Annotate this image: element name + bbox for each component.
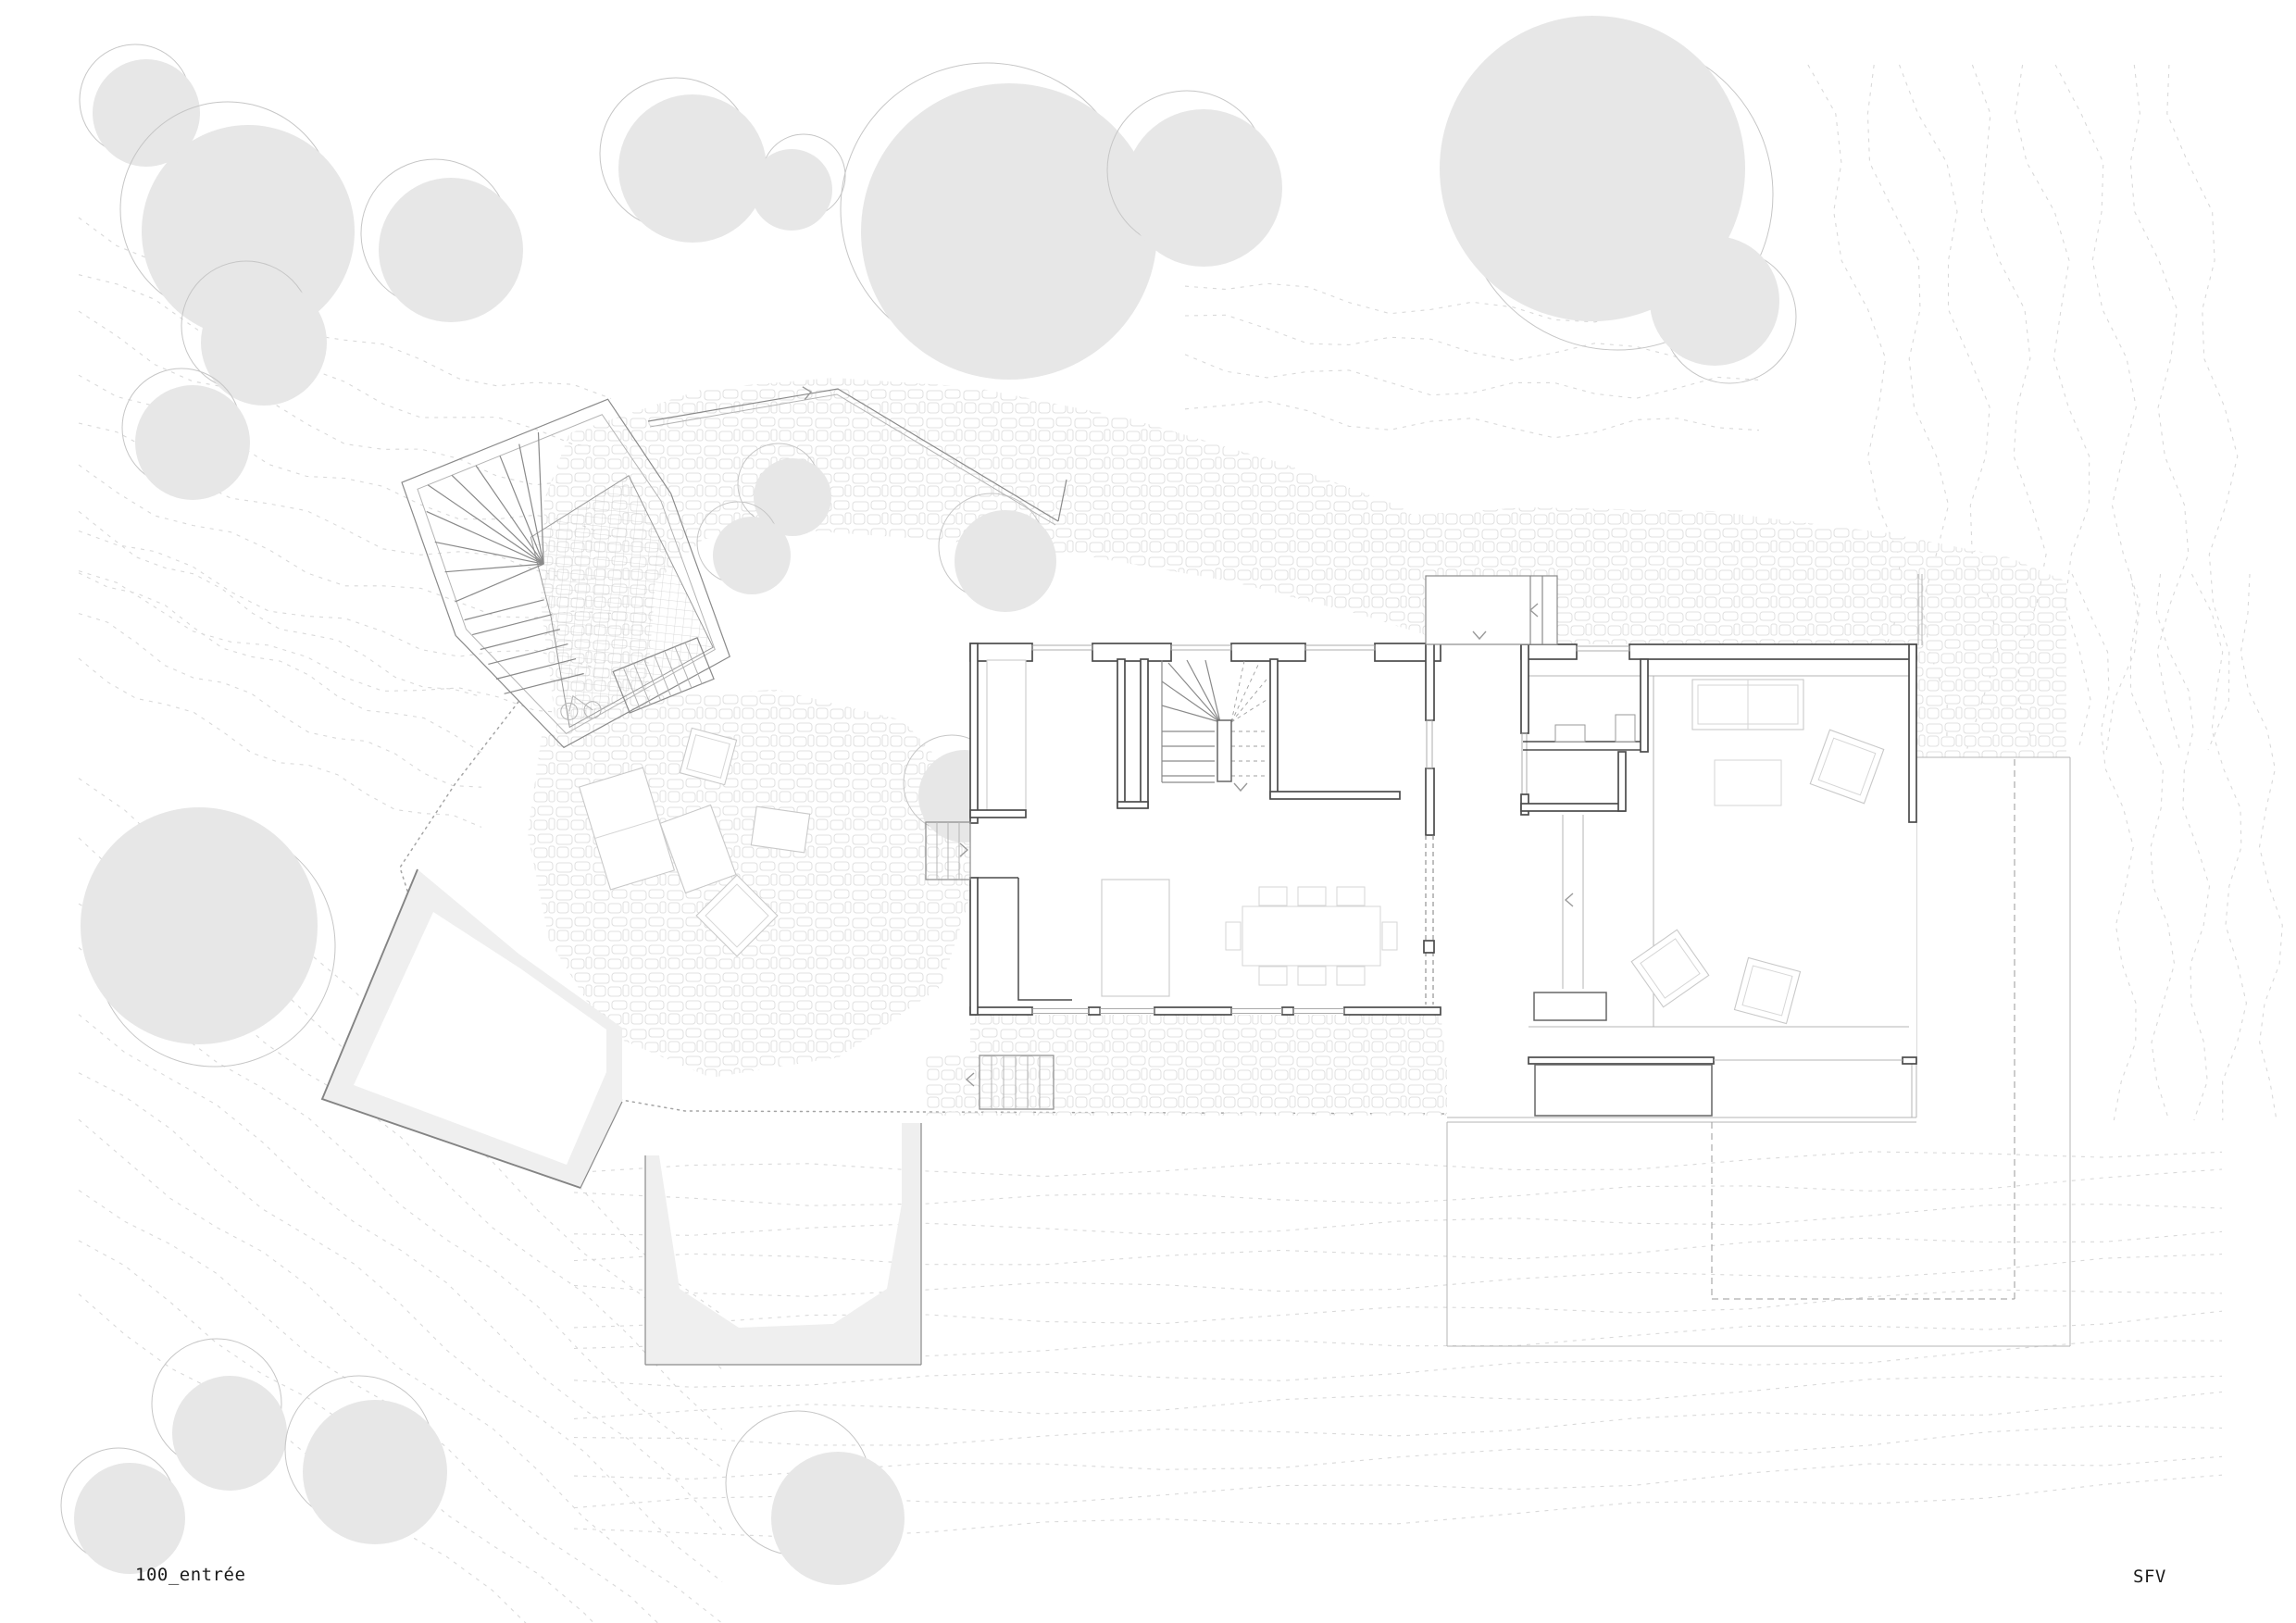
lower-platform — [645, 1123, 921, 1365]
drawing-title: 100_entrée — [135, 1565, 245, 1585]
tree-crown — [618, 94, 767, 243]
partition — [1270, 792, 1400, 799]
contour-line — [79, 511, 481, 696]
tree-crown — [81, 807, 318, 1044]
contour-line — [574, 1205, 2222, 1236]
contour-line — [2191, 574, 2246, 1120]
contour-line — [574, 1255, 2222, 1297]
appliance — [1555, 725, 1585, 742]
south-wall — [970, 1007, 1032, 1015]
west-wall — [970, 643, 978, 823]
partition — [1117, 802, 1148, 808]
contour-line — [79, 571, 611, 714]
partition — [970, 810, 1026, 818]
contour-line — [574, 1392, 2222, 1445]
contour-line — [1185, 401, 1759, 437]
glass-post — [1424, 941, 1434, 953]
tree-crown — [135, 385, 250, 500]
line — [452, 456, 543, 583]
contour-line — [2072, 574, 2136, 1120]
tree-crown — [379, 178, 523, 322]
tree-crown — [74, 1463, 185, 1574]
shape — [751, 806, 809, 853]
north-wall — [1521, 644, 1577, 659]
site-plan-page: 100_entrée SFV — [0, 0, 2296, 1623]
chair — [1226, 922, 1241, 950]
wardrobe — [987, 660, 1026, 810]
dining-table — [1242, 906, 1380, 966]
contour-line — [2130, 574, 2174, 1120]
contour-line — [574, 1169, 2222, 1205]
contour-line — [574, 1152, 2222, 1177]
contour-line — [79, 573, 481, 753]
south-wall — [1344, 1007, 1441, 1015]
contour-line — [79, 658, 481, 827]
partition — [1618, 752, 1626, 811]
east-wall — [1426, 768, 1434, 835]
chair — [1259, 967, 1287, 985]
north-wall — [1629, 644, 1916, 659]
contour-line — [79, 614, 481, 788]
tree-crown — [771, 1452, 905, 1585]
court-floor — [1441, 643, 1521, 1011]
outdoor-table — [751, 806, 809, 853]
stair-newel — [1217, 720, 1231, 781]
chair — [1298, 887, 1326, 905]
chair — [1382, 922, 1397, 950]
north-wall — [970, 643, 1032, 661]
east-wall — [1426, 643, 1434, 720]
north-wall — [1231, 643, 1305, 661]
tree-crown — [1650, 236, 1779, 366]
contour-line — [574, 1231, 2222, 1265]
contour-line — [1185, 355, 1759, 398]
appliance — [1616, 715, 1635, 742]
tree-crown — [713, 517, 791, 594]
line — [465, 590, 544, 630]
contour-line — [2130, 65, 2189, 750]
tree-crown — [955, 510, 1056, 612]
chair — [1337, 887, 1365, 905]
contour-line — [2055, 65, 2140, 750]
platform-slope — [645, 1123, 921, 1365]
site-plan-canvas — [0, 0, 2296, 1623]
south-wall — [1529, 1057, 1714, 1064]
west-wall — [970, 878, 978, 1015]
tree-crown — [861, 83, 1157, 380]
annex — [1521, 644, 1916, 1116]
tree-crown — [303, 1400, 447, 1544]
north-wall — [1092, 643, 1171, 661]
chair — [1259, 887, 1287, 905]
coffee-table — [1715, 760, 1781, 805]
kitchen-island — [1102, 880, 1169, 996]
tree-crown — [172, 1376, 287, 1491]
west-wall — [1521, 644, 1529, 733]
partition — [1141, 659, 1148, 807]
south-wall — [1903, 1057, 1916, 1064]
vestibule — [1426, 576, 1557, 644]
tree-crown — [751, 149, 832, 231]
contour-line — [574, 1376, 2222, 1418]
east-wall — [1909, 644, 1916, 822]
tree-crown — [1125, 109, 1282, 267]
partition — [1117, 659, 1125, 807]
partition — [1521, 804, 1625, 811]
contour-line — [2156, 574, 2209, 1120]
exterior-step — [1535, 1065, 1712, 1116]
step — [1534, 993, 1606, 1020]
tree-crown — [201, 280, 327, 406]
contour-line — [2167, 65, 2238, 750]
south-wall-pier — [1089, 1007, 1100, 1015]
chair — [1337, 967, 1365, 985]
contour-line — [574, 1290, 2222, 1328]
contour-line — [2240, 574, 2282, 1120]
line — [472, 605, 552, 645]
partition — [1270, 659, 1278, 798]
vestibule-floor — [1426, 576, 1557, 644]
south-wall — [1154, 1007, 1231, 1015]
chair — [1298, 967, 1326, 985]
author-initials: SFV — [2133, 1567, 2166, 1587]
south-wall-pier — [1282, 1007, 1293, 1015]
partition — [1641, 659, 1648, 752]
